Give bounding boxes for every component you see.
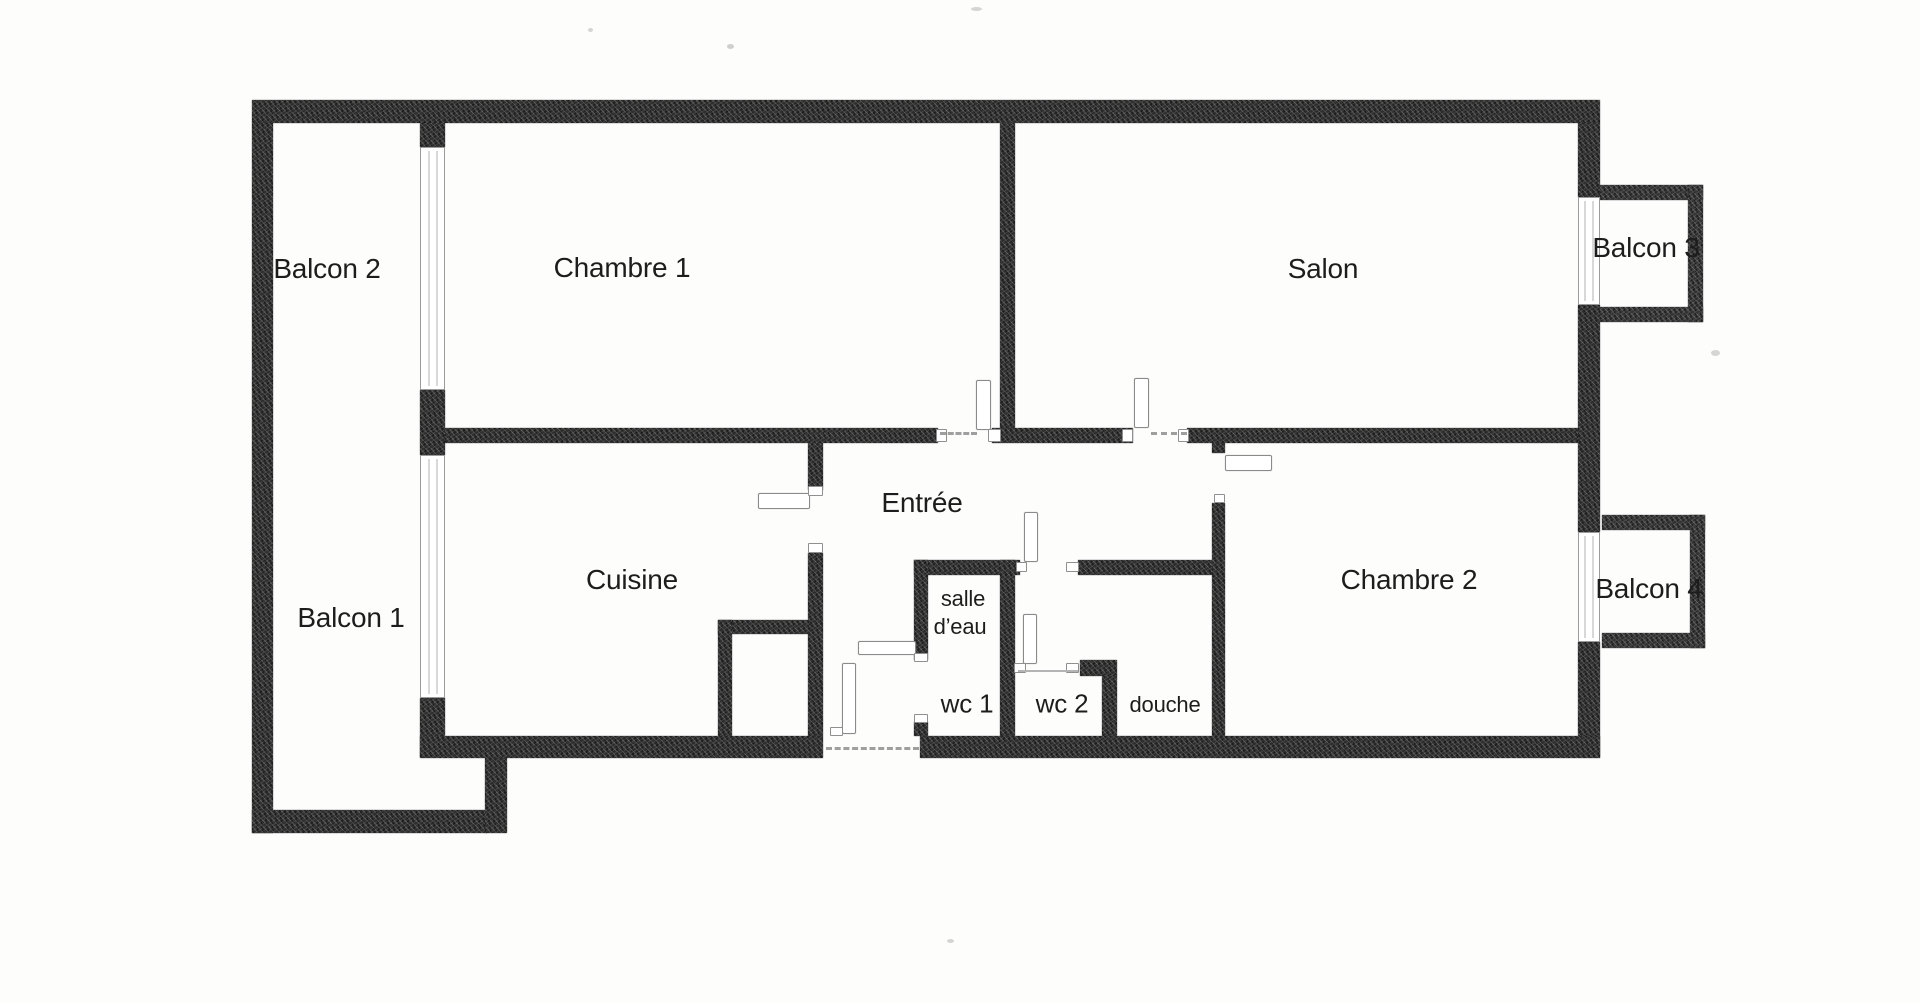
scan-speck: [947, 939, 954, 943]
room-label-balcon-4: Balcon 4: [1595, 573, 1702, 605]
wall-segment: [420, 736, 823, 758]
wall-segment: [808, 553, 823, 736]
wall-segment: [1187, 428, 1578, 443]
wall-segment: [1080, 660, 1117, 676]
room-label-d-eau: d’eau: [934, 614, 987, 640]
door-leaf: [1023, 614, 1037, 664]
room-label-chambre-1: Chambre 1: [554, 252, 691, 284]
door-hinge-mark: [1214, 494, 1225, 503]
room-label-cuisine: Cuisine: [586, 564, 678, 596]
room-label-balcon-3: Balcon 3: [1592, 232, 1699, 264]
room-label-wc-1: wc 1: [941, 689, 994, 720]
threshold-line: [1018, 670, 1078, 672]
wall-segment: [1102, 675, 1117, 736]
wall-segment: [420, 123, 445, 147]
wall-segment: [445, 428, 938, 443]
room-label-balcon-2: Balcon 2: [273, 253, 380, 285]
door-leaf: [976, 380, 991, 430]
wall-segment: [252, 810, 487, 833]
wall-segment: [718, 620, 732, 736]
wall-segment: [808, 443, 823, 490]
scan-speck: [1711, 350, 1720, 356]
wall-segment: [1078, 560, 1212, 575]
wall-segment: [914, 722, 928, 736]
wall-segment: [992, 428, 1133, 443]
wall-segment: [420, 390, 445, 455]
threshold-line: [1151, 432, 1187, 435]
wall-segment: [1600, 307, 1703, 322]
room-label-salon: Salon: [1288, 253, 1359, 285]
wall-segment: [1000, 560, 1015, 736]
wall-segment: [1212, 443, 1225, 453]
door-hinge-mark: [1122, 429, 1133, 442]
door-leaf: [758, 493, 810, 509]
scan-speck: [588, 28, 593, 32]
door-hinge-mark: [1016, 562, 1027, 572]
window: [420, 455, 445, 698]
room-label-chambre-2: Chambre 2: [1341, 564, 1478, 596]
scanned-floor-plan-page: Balcon 2Chambre 1SalonBalcon 3Balcon 1Cu…: [0, 0, 1920, 1003]
scan-speck: [727, 44, 734, 49]
door-leaf: [842, 663, 856, 734]
wall-segment: [1578, 123, 1600, 197]
door-leaf: [858, 641, 916, 655]
door-leaf: [1225, 455, 1272, 471]
threshold-line: [826, 747, 919, 750]
wall-segment: [1602, 633, 1705, 648]
door-hinge-mark: [914, 714, 928, 723]
wall-segment: [914, 560, 928, 660]
door-leaf: [1134, 378, 1149, 428]
door-hinge-mark: [808, 543, 823, 553]
room-label-douche: douche: [1130, 692, 1201, 718]
threshold-line: [940, 432, 977, 435]
wall-segment: [485, 757, 507, 833]
wall-segment: [1578, 305, 1600, 532]
door-hinge-mark: [830, 727, 843, 736]
window: [420, 147, 445, 390]
wall-segment: [1000, 123, 1015, 428]
wall-segment: [920, 736, 1600, 758]
door-leaf: [1024, 512, 1038, 562]
wall-segment: [252, 100, 1600, 123]
room-label-salle: salle: [941, 586, 985, 612]
room-label-entree: Entrée: [881, 487, 962, 519]
door-hinge-mark: [936, 429, 947, 442]
room-label-balcon-1: Balcon 1: [297, 602, 404, 634]
floor-plan: Balcon 2Chambre 1SalonBalcon 3Balcon 1Cu…: [0, 0, 1920, 1003]
wall-segment: [1212, 503, 1225, 736]
door-hinge-mark: [1066, 562, 1079, 572]
door-hinge-mark: [808, 486, 823, 496]
door-hinge-mark: [1178, 429, 1189, 442]
wall-segment: [252, 123, 273, 833]
room-label-wc-2: wc 2: [1036, 689, 1089, 720]
door-hinge-mark: [988, 429, 1001, 442]
scan-speck: [971, 7, 982, 11]
door-hinge-mark: [914, 653, 928, 662]
